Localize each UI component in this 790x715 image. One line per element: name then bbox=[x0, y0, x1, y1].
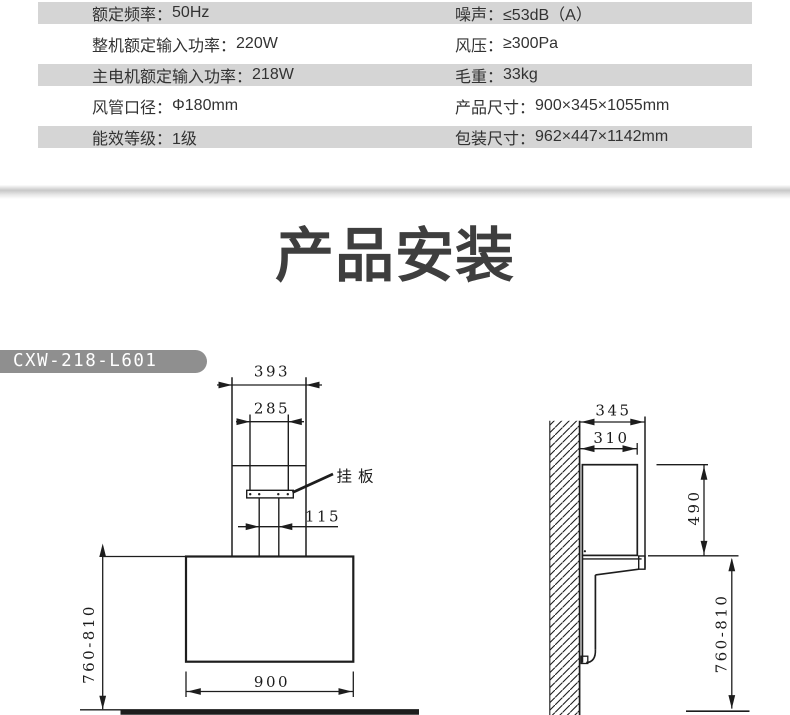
side-view-drawing: 345 310 490 760-810 bbox=[550, 402, 750, 715]
chimney-side bbox=[582, 465, 637, 556]
plate-label: 挂板 bbox=[337, 468, 380, 486]
dim-plate-offset: 115 bbox=[305, 508, 341, 526]
wall-hatch bbox=[550, 421, 580, 715]
dim-body-width: 900 bbox=[254, 673, 290, 691]
dim-overall-depth: 345 bbox=[595, 402, 631, 420]
plate-leader-line bbox=[293, 474, 334, 493]
front-view-drawing: 393 285 挂板 115 bbox=[80, 363, 419, 713]
installation-diagram: 393 285 挂板 115 bbox=[0, 0, 790, 715]
dim-duct-width: 285 bbox=[254, 400, 290, 418]
dim-install-height-side: 760-810 bbox=[712, 594, 730, 674]
dim-overall-width: 393 bbox=[254, 363, 290, 381]
dim-duct-depth: 310 bbox=[593, 429, 629, 447]
dim-chimney-height: 490 bbox=[685, 489, 703, 525]
hood-body bbox=[186, 557, 353, 662]
dim-install-height: 760-810 bbox=[80, 604, 98, 684]
